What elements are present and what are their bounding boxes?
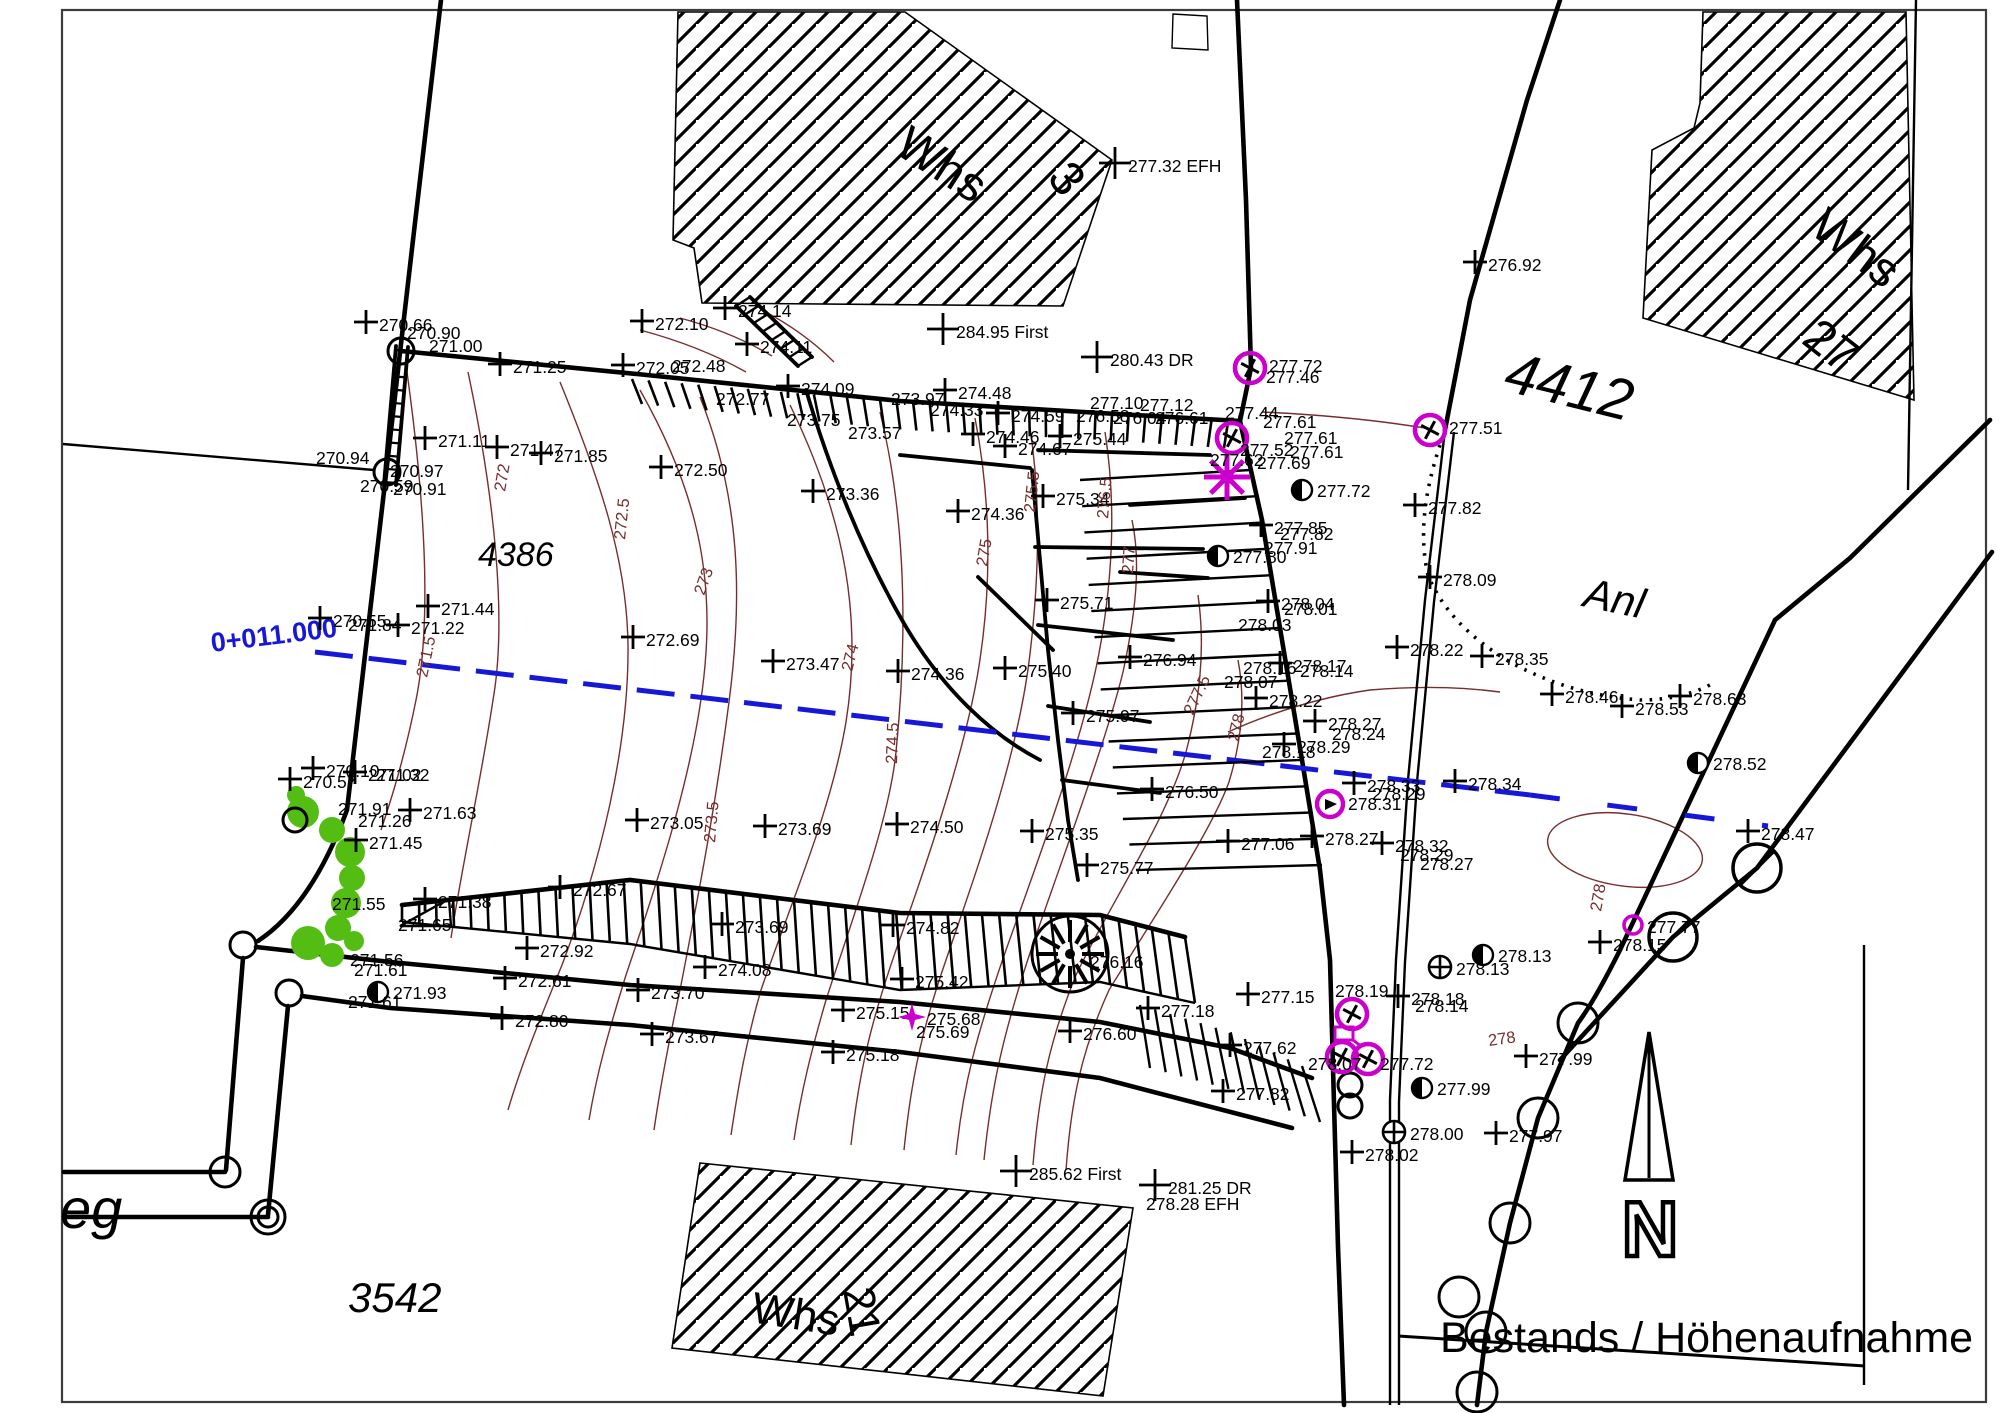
elevation-label: 277.61: [1290, 442, 1344, 462]
elevation-label: 277.51: [1449, 418, 1503, 438]
elevation-label: 278.02: [1365, 1145, 1419, 1165]
elevation-label: 273.36: [826, 484, 880, 504]
elevation-label: 274.14: [738, 301, 792, 321]
elevation-label: 278.13: [1498, 946, 1552, 966]
point-cross: [885, 812, 909, 836]
elevation-label: 274.36: [911, 664, 965, 684]
contour-label: 274: [838, 642, 862, 673]
point-cross: [1484, 1121, 1508, 1145]
elevation-label: 280.43 DR: [1110, 350, 1194, 370]
elevation-label: 275.71: [1060, 593, 1114, 613]
road-southeast-edge-1: [1477, 420, 1990, 1405]
elevation-label: 271.38: [438, 892, 492, 912]
survey-plan: 0+011.000 270.66270.90271.00271.25271.11…: [0, 0, 2000, 1413]
elevation-label: 278.46: [1565, 687, 1619, 707]
building-whs-21: [672, 1163, 1133, 1396]
shrub-symbol: [339, 865, 365, 891]
elevation-label: 278.31: [1348, 794, 1402, 814]
elevation-label: 275.42: [915, 972, 969, 992]
point-cross: [1470, 644, 1494, 668]
elevation-label: 278.14: [1300, 661, 1354, 681]
elevation-label: 270.91: [393, 479, 447, 499]
manhole-circle: [276, 980, 302, 1006]
point-cross: [1216, 829, 1240, 853]
area-label: eg: [60, 1177, 122, 1240]
elevation-label: 271.32: [376, 765, 430, 785]
elevation-label: 273.69: [735, 917, 789, 937]
elevation-label: 274.50: [910, 817, 964, 837]
elevation-label: 278.27: [1420, 854, 1474, 874]
elevation-label: 274.36: [971, 504, 1025, 524]
point-cross: [630, 309, 654, 333]
contour-label: 278: [1224, 712, 1248, 743]
contour-label: 274.5: [883, 722, 902, 764]
elevation-label: 274.08: [718, 960, 772, 980]
elevation-label: 272.50: [674, 460, 728, 480]
elevation-label: 278.14: [1415, 996, 1469, 1016]
elevation-label: 277.72: [1317, 481, 1371, 501]
manhole-circle: [1439, 1277, 1479, 1317]
point-cross: [1300, 824, 1324, 848]
elevation-label: 270.57: [303, 772, 357, 792]
elevation-label: 278.01: [1284, 599, 1338, 619]
elevation-label: 275.97: [1086, 706, 1140, 726]
elevation-label: 271.63: [423, 803, 477, 823]
elevation-label: 274.11: [760, 337, 812, 357]
elevation-label: 278.03: [1238, 615, 1292, 635]
point-cross: [710, 912, 734, 936]
point-cross: [946, 499, 970, 523]
area-label: 4386: [478, 536, 554, 574]
point-cross: [621, 625, 645, 649]
elevation-label: 273.70: [651, 983, 705, 1003]
elevation-label: 272.80: [515, 1011, 569, 1031]
contour-label: 273.5: [701, 801, 723, 844]
shrub-symbol: [335, 837, 365, 867]
elevation-label: 278.09: [1443, 570, 1497, 590]
elevation-label: 272.61: [518, 971, 572, 991]
elevation-label: 277.99: [1539, 1049, 1593, 1069]
point-cross: [493, 966, 517, 990]
elevation-label: 277.82: [1428, 498, 1482, 518]
point-cross: [1211, 1079, 1235, 1103]
elevation-label: 278.22: [1410, 640, 1464, 660]
point-cross: [1386, 984, 1410, 1008]
elevation-label: 278.07: [1224, 672, 1278, 692]
manhole-circle: [230, 932, 256, 958]
point-cross: [1385, 635, 1409, 659]
elevation-label: 277.32 EFH: [1128, 156, 1221, 176]
elevation-label: 272.67: [573, 880, 627, 900]
point-cross: [1588, 930, 1612, 954]
elevation-label: 276.61: [1155, 408, 1209, 428]
point-cross: [831, 998, 855, 1022]
elevation-label: 271.26: [358, 811, 412, 831]
road-south-edge-2: [302, 996, 1292, 1128]
elevation-label: 275.69: [916, 1022, 970, 1042]
plan-title: Bestands / Höhenaufnahme: [1440, 1314, 1973, 1362]
area-label: Anl: [1577, 568, 1651, 628]
elevation-label: 278.00: [1410, 1124, 1464, 1144]
elevation-label: 274.82: [906, 918, 960, 938]
contour-label: 277: [1119, 546, 1139, 575]
point-cross: [761, 649, 785, 673]
contour-label: 271.5: [413, 635, 439, 679]
elevation-label: 275.15: [856, 1003, 910, 1023]
point-cross: [1000, 1155, 1032, 1187]
elevation-label: 278.35: [1495, 649, 1549, 669]
shrub-symbol: [319, 817, 345, 843]
elevation-label: 274.59: [1011, 406, 1065, 426]
elevation-label: 277.82: [1236, 1084, 1290, 1104]
contour-label: 272.5: [611, 497, 633, 540]
elevation-label: 271.61: [348, 992, 402, 1012]
point-cross: [1249, 513, 1273, 537]
contour-label: 278: [1587, 882, 1610, 912]
elevation-label: 278.18: [1262, 742, 1316, 762]
elevation-label: 274.67: [1018, 439, 1072, 459]
road-south-edge-1: [256, 947, 1312, 1078]
point-cross: [993, 656, 1017, 680]
elevation-label: 277.62: [1210, 450, 1264, 470]
elevation-label: 278.52: [1713, 754, 1767, 774]
elevation-label: 271.00: [429, 336, 483, 356]
contour-label: 273: [691, 565, 717, 597]
point-cross: [890, 967, 914, 991]
elevation-label: 276.94: [1143, 650, 1197, 670]
elevation-label: 271.25: [513, 357, 567, 377]
point-cross: [1061, 701, 1085, 725]
elevation-label: 271.44: [441, 599, 495, 619]
elevation-label: 271.45: [369, 833, 423, 853]
elevation-label: 275.40: [1018, 661, 1072, 681]
building-whs-27: [1643, 12, 1914, 400]
point-cross: [490, 1006, 514, 1030]
elevation-label: 273.75: [787, 410, 841, 430]
elevation-label: 277.06: [1241, 834, 1295, 854]
point-cross: [625, 808, 649, 832]
elevation-label: 284.95 First: [956, 322, 1049, 342]
point-cross: [927, 313, 959, 345]
elevation-label: 278.28 EFH: [1146, 1194, 1239, 1214]
elevation-label: 277.77: [1647, 917, 1701, 937]
north-arrow: N: [1622, 1032, 1678, 1273]
elevation-label: 272.77: [716, 389, 770, 409]
point-cross: [886, 659, 910, 683]
elevation-label: 271.22: [411, 618, 465, 638]
area-label: 4412: [1499, 340, 1640, 434]
shrub-symbol: [344, 931, 364, 951]
contour-label: 276.5: [1094, 477, 1116, 520]
elevation-label: 273.47: [786, 654, 840, 674]
north-letter: N: [1622, 1185, 1678, 1273]
elevation-label: 276.92: [1488, 255, 1542, 275]
elevation-label: 275.44: [1073, 429, 1127, 449]
elevation-label: 278.07: [1308, 1054, 1362, 1074]
elevation-label: 273.57: [848, 423, 902, 443]
elevation-label: 273.67: [665, 1027, 719, 1047]
elevation-label: 273.05: [650, 813, 704, 833]
elevation-label: 274.09: [801, 379, 855, 399]
point-cross: [1118, 645, 1142, 669]
elevation-label: 271.55: [332, 894, 386, 914]
elevation-label: 270.94: [316, 448, 370, 468]
elevation-label: 277.72: [1380, 1054, 1434, 1074]
elevation-label: 271.65: [398, 915, 452, 935]
elevation-label: 278.19: [1335, 981, 1389, 1001]
elevation-label: 285.62 First: [1029, 1164, 1122, 1184]
elevation-label: 275.18: [846, 1045, 900, 1065]
elevation-label: 272.92: [540, 941, 594, 961]
elevation-label: 277.15: [1261, 987, 1315, 1007]
point-cross: [488, 352, 512, 376]
shrub-symbol: [320, 943, 344, 967]
elevation-label: 272.69: [646, 630, 700, 650]
point-cross: [1081, 341, 1113, 373]
elevation-label: 278.27: [1325, 829, 1379, 849]
point-cross: [548, 875, 572, 899]
point-cross: [1140, 777, 1164, 801]
point-cross: [649, 455, 673, 479]
elevation-label: 277.97: [1509, 1126, 1563, 1146]
point-cross: [1514, 1044, 1538, 1068]
elevation-label: 271.85: [554, 446, 608, 466]
point-cross: [1340, 1140, 1364, 1164]
elevation-label: 278.47: [1761, 824, 1815, 844]
elevation-label: 274.48: [958, 383, 1012, 403]
contour-label: 272: [491, 462, 514, 492]
slope-hatch-ticks: [1140, 1005, 1320, 1122]
point-cross: [1058, 1019, 1082, 1043]
point-cross: [416, 594, 440, 618]
elevation-label: 277.91: [1264, 538, 1318, 558]
building-whs-3-annex: [1172, 14, 1208, 50]
elevation-label: 272.48: [672, 356, 726, 376]
elevation-label: 277.99: [1437, 1079, 1491, 1099]
point-cross: [515, 936, 539, 960]
contour-label: 278: [1487, 1028, 1517, 1050]
point-cross: [1020, 819, 1044, 843]
elevation-label: 272.10: [655, 314, 709, 334]
point-cross: [1540, 682, 1564, 706]
elevation-label: 271.61: [354, 960, 408, 980]
elevation-label: 278.22: [1269, 691, 1323, 711]
elevation-label: 277.46: [1266, 367, 1320, 387]
elevation-label: 278.34: [1468, 774, 1522, 794]
elevation-label: 276.60: [1083, 1024, 1137, 1044]
elevation-label: 277.18: [1161, 1001, 1215, 1021]
elevation-label: 274.33: [930, 400, 984, 420]
shrub-symbol: [291, 926, 325, 960]
point-cross: [1236, 982, 1260, 1006]
area-label: 3542: [348, 1274, 441, 1321]
elevation-points: 270.66270.90271.00271.25271.11271.47271.…: [278, 147, 1815, 1214]
area-label: 21: [833, 1283, 890, 1340]
survey-map-canvas: 0+011.000 270.66270.90271.00271.25271.11…: [0, 0, 2000, 1413]
station-line: 0+011.000: [209, 613, 1768, 826]
point-cross: [801, 479, 825, 503]
elevation-label: 275.77: [1100, 858, 1154, 878]
point-cross: [735, 332, 759, 356]
contour-label: 275.5: [1021, 470, 1043, 513]
point-cross: [1035, 588, 1059, 612]
point-cross: [1736, 819, 1760, 843]
point-cross: [753, 814, 777, 838]
contour-label: 275: [973, 537, 996, 567]
elevation-label: 275.35: [1045, 824, 1099, 844]
point-cross: [1303, 709, 1327, 733]
elevation-label: 277.62: [1243, 1038, 1297, 1058]
elevation-label: 276.50: [1165, 782, 1219, 802]
point-cross: [626, 978, 650, 1002]
elevation-label: 278.15: [1613, 935, 1667, 955]
elevation-label: 271.11: [438, 431, 490, 451]
elevation-label: 273.69: [778, 819, 832, 839]
elevation-label: 276.16: [1090, 952, 1144, 972]
point-cross: [354, 310, 378, 334]
elevation-label: 278.63: [1693, 689, 1747, 709]
